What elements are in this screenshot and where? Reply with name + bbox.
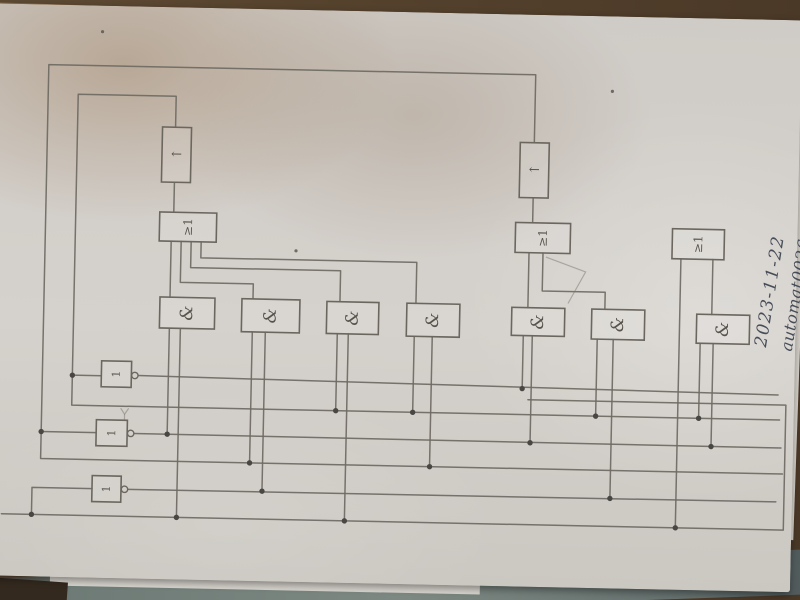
wire-input-bus bbox=[1, 389, 785, 530]
wire-or1-in-and1 bbox=[170, 241, 171, 297]
and2-label: & bbox=[260, 308, 280, 324]
junction-dot bbox=[174, 515, 180, 521]
wire-or3-bus-tap bbox=[675, 259, 681, 528]
not1-label: 1 bbox=[110, 370, 123, 377]
photo-frame: ←←≥1≥1≥1111&&&&&&& 2023-11-22 automat002… bbox=[0, 0, 800, 600]
wire-and2-in-b bbox=[262, 332, 265, 491]
wire-or1-in-and4 bbox=[200, 242, 417, 304]
pencil-speck bbox=[611, 90, 614, 93]
wire-and4-in-b bbox=[430, 337, 433, 467]
and3-label: & bbox=[342, 310, 362, 326]
wire-or2-in-and6 bbox=[542, 253, 606, 309]
junction-dot bbox=[333, 408, 339, 414]
wire-not3-in bbox=[31, 487, 92, 515]
wire-and7-in-a bbox=[699, 343, 701, 418]
inverter-bubble bbox=[127, 430, 134, 437]
wire-and5-in-a bbox=[522, 336, 523, 389]
wire-and2-in-a bbox=[250, 332, 253, 463]
or3-label: ≥1 bbox=[691, 235, 705, 253]
junction-dot bbox=[247, 460, 253, 466]
inverter-bubble bbox=[121, 486, 128, 493]
junction-dot bbox=[259, 488, 265, 494]
junction-dot bbox=[164, 431, 170, 437]
not2-label: 1 bbox=[105, 429, 118, 436]
junction-dot bbox=[696, 416, 702, 422]
ff2-label: ← bbox=[529, 163, 540, 178]
inverter-bubble bbox=[132, 372, 139, 379]
pencil-speck bbox=[101, 30, 104, 33]
wire-not1-out-bus bbox=[138, 376, 778, 395]
wire-not1-in bbox=[72, 375, 101, 376]
wire-not2-in bbox=[41, 432, 96, 433]
wire-ff1-input bbox=[174, 182, 175, 212]
and7-label: & bbox=[713, 321, 733, 337]
and6-label: & bbox=[608, 317, 628, 333]
wire-or1-in-and3 bbox=[190, 242, 341, 302]
wire-or2-in-and5 bbox=[528, 253, 529, 308]
junction-dot bbox=[427, 464, 433, 470]
wire-and7-in-b bbox=[711, 344, 713, 447]
junction-dot bbox=[673, 525, 679, 531]
and1-label: & bbox=[177, 305, 197, 321]
wire-ff2-input bbox=[533, 198, 534, 223]
junction-dot bbox=[527, 440, 533, 446]
or1-label: ≥1 bbox=[181, 218, 195, 236]
wire-and4-in-a bbox=[413, 336, 415, 412]
wire-and5-in-b bbox=[530, 336, 532, 443]
pencil-mark-stray-arc bbox=[545, 257, 586, 304]
junction-dot bbox=[29, 512, 35, 518]
junction-dot bbox=[708, 444, 714, 450]
wire-and3-in-a bbox=[336, 334, 338, 411]
wire-and1-in-a bbox=[167, 328, 169, 434]
ff1-label: ← bbox=[171, 147, 182, 162]
wire-not2-out-bus bbox=[134, 433, 781, 448]
and5-label: & bbox=[528, 314, 548, 330]
junction-dot bbox=[607, 496, 613, 502]
circuit-svg: ←←≥1≥1≥1111&&&&&&& bbox=[0, 0, 800, 600]
paper-scene: ←←≥1≥1≥1111&&&&&&& 2023-11-22 automat002… bbox=[0, 0, 800, 600]
pencil-speck bbox=[294, 249, 297, 252]
junction-dot bbox=[410, 410, 416, 416]
pencil-mark-stray-tick bbox=[121, 408, 129, 414]
wire-and6-in-a bbox=[596, 339, 598, 416]
wire-and1-in-b bbox=[176, 328, 180, 517]
wire-not3-out-bus bbox=[128, 488, 776, 503]
and4-label: & bbox=[423, 312, 443, 328]
junction-dot bbox=[38, 429, 44, 435]
wire-or3-in-and7 bbox=[712, 260, 713, 315]
junction-dot bbox=[593, 413, 599, 419]
not3-label: 1 bbox=[100, 485, 113, 492]
or2-label: ≥1 bbox=[536, 229, 550, 247]
wire-and6-in-b bbox=[610, 339, 613, 498]
junction-dot bbox=[342, 518, 348, 524]
junction-dot bbox=[70, 372, 76, 378]
